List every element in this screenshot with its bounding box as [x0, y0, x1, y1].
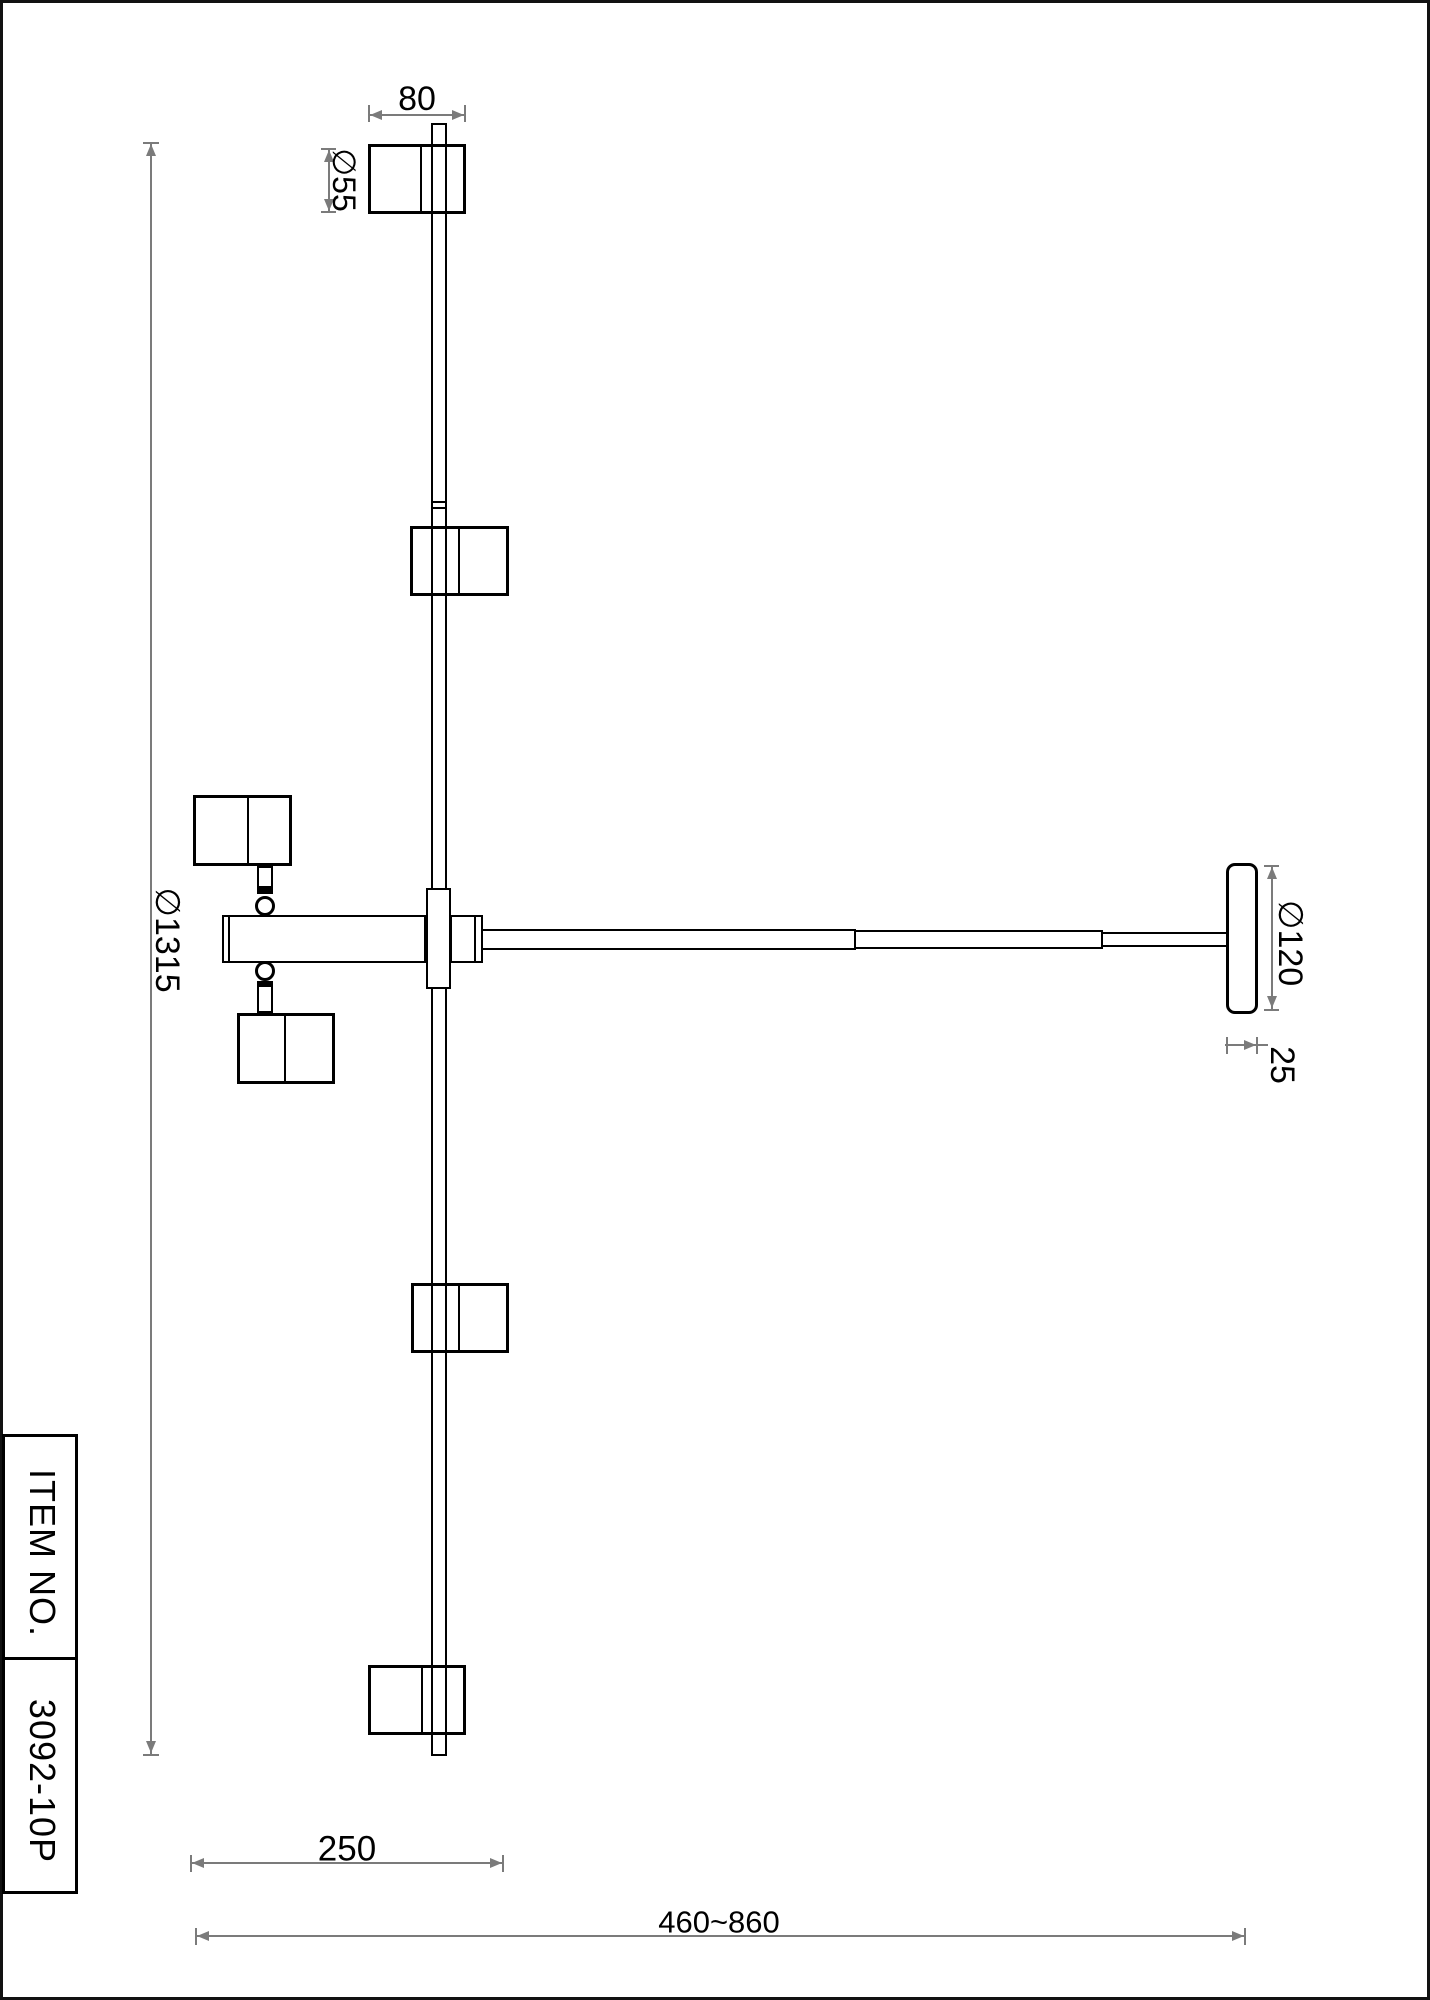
lamp-head-divider: [458, 529, 460, 593]
cross-bar-left-endcap: [228, 917, 230, 961]
telescopic-arm-segment-1: [481, 929, 856, 950]
dim-1315-label: ∅1315: [150, 887, 184, 992]
dim-250-label: 250: [318, 1832, 376, 1867]
page-border-frame: [0, 0, 1430, 2000]
cross-bar-left: [222, 915, 426, 963]
dim-460-arrow-left: [197, 1931, 209, 1941]
dim-120-arrow-up: [1267, 867, 1277, 879]
dim-460-label: 460~860: [658, 1907, 780, 1938]
dim-120-arrow-down: [1267, 996, 1277, 1008]
central-hub: [426, 888, 451, 989]
lamp-head-left-lower: [237, 1013, 335, 1084]
lamp-head-left-upper: [193, 795, 292, 866]
lamp-head-divider: [247, 798, 249, 863]
dim-250-arrow-right: [490, 1858, 502, 1868]
lamp-head-bottom: [368, 1665, 466, 1735]
ceiling-plate: [1226, 863, 1258, 1014]
cross-bar-right-stub: [450, 915, 483, 963]
lamp-head-divider: [458, 1286, 460, 1350]
lamp-head-divider: [420, 147, 422, 211]
dim-55-label: ∅55: [328, 148, 360, 211]
dim-1315-arrow-down: [146, 1741, 156, 1753]
lamp-head-divider: [421, 1668, 423, 1732]
lamp-head-top: [368, 144, 466, 214]
telescopic-arm-segment-2: [856, 930, 1103, 949]
dim-1315-arrow-up: [146, 144, 156, 156]
dim-120-label: ∅120: [1273, 900, 1307, 986]
dim-25-label: 25: [1265, 1046, 1299, 1084]
swivel-band-upper: [257, 886, 273, 892]
title-block-divider: [5, 1657, 75, 1660]
dim-80-arrow-left: [370, 110, 382, 120]
dim-460-ext-right: [1244, 1928, 1246, 1945]
cross-bar-right-endcap: [474, 917, 476, 961]
item-no-value: 3092-10P: [24, 1699, 60, 1863]
lamp-head-divider: [284, 1016, 286, 1081]
dim-80-arrow-right: [452, 110, 464, 120]
item-no-label: ITEM NO.: [24, 1469, 60, 1637]
lamp-head-upper-middle: [410, 526, 509, 596]
drawing-page: 80 ∅55 ∅1315 ∅120 25 250 460~860 ITEM NO…: [0, 0, 1430, 2000]
lamp-head-lower-middle: [411, 1283, 509, 1353]
telescopic-arm-segment-3: [1103, 932, 1228, 947]
dim-25-arrow-right: [1244, 1040, 1256, 1050]
dim-460-arrow-right: [1232, 1931, 1244, 1941]
rod-joint: [431, 501, 447, 509]
dim-250-arrow-left: [192, 1858, 204, 1868]
dim-80-label: 80: [398, 82, 436, 116]
swivel-ring-lower: [255, 961, 275, 981]
swivel-band-lower: [257, 981, 273, 987]
swivel-ring-upper: [255, 896, 275, 916]
